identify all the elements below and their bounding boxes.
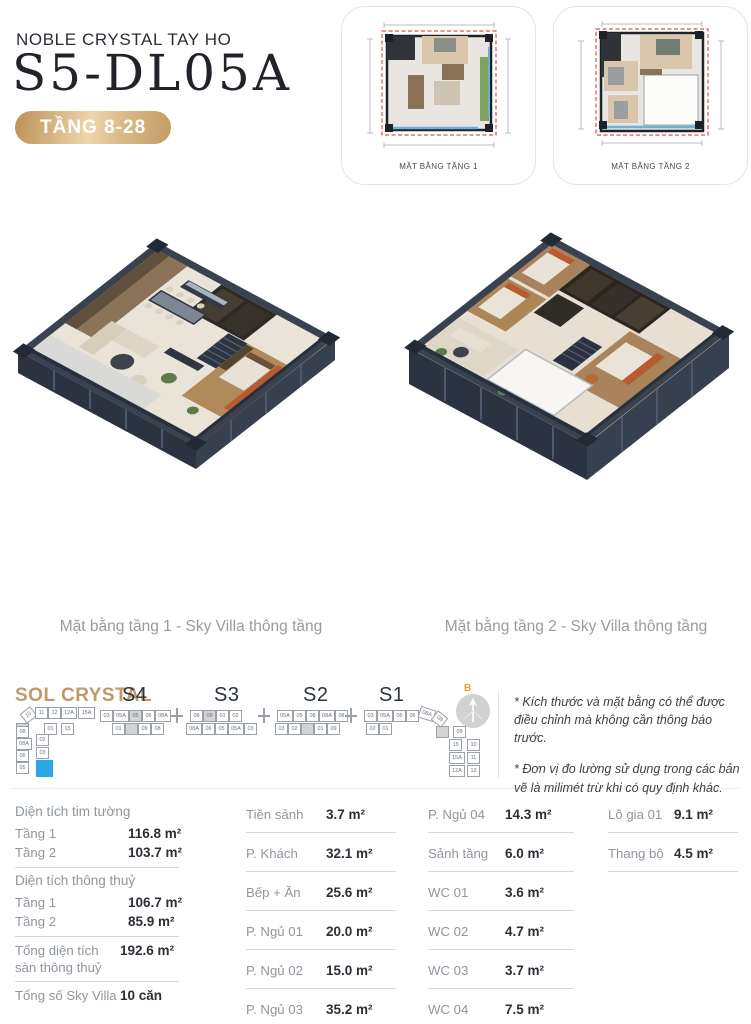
unit-cell: 09: [327, 723, 340, 735]
area-row-value: 6.0 m²: [505, 845, 544, 863]
note-adjustment: * Kích thước và mặt bằng có thể được điề…: [514, 693, 744, 747]
floor-range-badge: TẦNG 8-28: [15, 111, 171, 144]
unit-cell: 08: [151, 723, 164, 735]
strip-connector: [345, 715, 357, 717]
unit-cell: 08: [190, 710, 203, 722]
compass-north-label: B: [464, 683, 471, 694]
unit-cell: 03: [364, 710, 377, 722]
unit-cell: [436, 726, 449, 738]
building-locator-strip: 0305A050608A0109080809010208A060505A0305…: [0, 704, 500, 788]
area-row-value: 3.7 m²: [326, 806, 365, 824]
summary-row-label: Tổng số Sky Villa: [15, 986, 120, 1004]
unit-cell: 05A: [113, 710, 129, 722]
area-row: WC 024.7 m²: [428, 923, 574, 950]
unit-cell: 05: [16, 762, 29, 774]
area-row-label: Sảnh tầng: [428, 845, 505, 863]
area-row-value: 3.7 m²: [505, 962, 544, 980]
disclaimer-notes: * Kích thước và mặt bằng có thể được điề…: [514, 693, 744, 810]
unit-cell: 03: [244, 723, 257, 735]
unit-cell: 08A: [319, 710, 335, 722]
area-row-label: Thang bộ: [608, 845, 674, 863]
unit-cell: 02: [36, 734, 49, 746]
summary-divider: [15, 981, 179, 982]
area-row: P. Ngủ 0335.2 m²: [246, 1001, 396, 1024]
area-row: Sảnh tầng6.0 m²: [428, 845, 574, 872]
area-row-label: P. Ngủ 04: [428, 806, 505, 824]
area-row: Tiền sảnh3.7 m²: [246, 806, 396, 833]
unit-cell: 05A: [377, 710, 393, 722]
unit-cell: 02: [366, 723, 379, 735]
area-row-label: P. Khách: [246, 845, 326, 863]
unit-cell: 08A: [16, 738, 32, 750]
area-row-value: 3.6 m²: [505, 884, 544, 902]
unit-cell: 02: [229, 710, 242, 722]
summary-row: Tổng số Sky Villa10 căn: [15, 986, 230, 1005]
area-row-value: 7.5 m²: [505, 1001, 544, 1019]
area-row-label: P. Ngủ 03: [246, 1001, 326, 1019]
area-row: WC 013.6 m²: [428, 884, 574, 911]
floorplan-thumbnail-level2: MẶT BẰNG TẦNG 2: [553, 6, 748, 185]
unit-cell: 12: [48, 707, 61, 719]
area-row-label: Lô gia 01: [608, 806, 674, 824]
unit-cell: 01: [314, 723, 327, 735]
summary-group-title: Diện tích tim tường: [15, 803, 230, 821]
unit-cell: 08: [16, 726, 29, 738]
unit-cell: 15: [449, 739, 462, 751]
unit-cell: 06: [142, 710, 155, 722]
area-row-label: WC 01: [428, 884, 505, 902]
area-row-value: 35.2 m²: [326, 1001, 373, 1019]
summary-row-value: 116.8 m²: [128, 824, 181, 843]
strip-connector: [171, 715, 183, 717]
unit-cell: 15: [61, 723, 74, 735]
summary-row: Tổng diện tích sàn thông thuỷ192.6 m²: [15, 941, 230, 976]
unit-cell: 05: [215, 723, 228, 735]
floorplan-2d-level2: [568, 17, 733, 153]
unit-cell: 05: [129, 710, 142, 722]
area-row: WC 033.7 m²: [428, 962, 574, 989]
unit-cell: 10: [467, 739, 480, 751]
area-row-value: 20.0 m²: [326, 923, 373, 941]
summary-divider: [15, 867, 179, 868]
area-row-label: WC 04: [428, 1001, 505, 1019]
area-row: P. Ngủ 0414.3 m²: [428, 806, 574, 833]
unit-cell: 12A: [61, 707, 77, 719]
thumbnail-label: MẶT BẰNG TẦNG 2: [554, 162, 747, 171]
unit-cell: [36, 760, 53, 777]
summary-row-value: 10 căn: [120, 986, 162, 1005]
summary-row: Tầng 1106.7 m²: [15, 893, 230, 912]
unit-cell: 05: [393, 710, 406, 722]
room-area-column-2: P. Ngủ 0414.3 m²Sảnh tầng6.0 m²WC 013.6 …: [428, 806, 574, 1024]
floorplan-3d-level1: [2, 214, 382, 604]
area-row-label: Tiền sảnh: [246, 806, 326, 824]
summary-row: Tầng 2103.7 m²: [15, 843, 230, 862]
area-row-label: P. Ngủ 02: [246, 962, 326, 980]
area-row: P. Ngủ 0120.0 m²: [246, 923, 396, 950]
unit-cell: 08A: [186, 723, 202, 735]
summary-row: Tầng 1116.8 m²: [15, 824, 230, 843]
unit-cell: 11: [35, 707, 48, 719]
unit-code-title: S5-DL05A: [12, 44, 292, 102]
unit-cell: 03: [36, 747, 49, 759]
unit-cell: 09: [138, 723, 151, 735]
summary-row-value: 106.7 m²: [128, 893, 182, 912]
area-row: P. Ngủ 0215.0 m²: [246, 962, 396, 989]
unit-cell: 01: [112, 723, 125, 735]
unit-cell: 12: [467, 765, 480, 777]
summary-row-value: 192.6 m²: [120, 941, 174, 960]
unit-cell: 06: [202, 723, 215, 735]
summary-row-label: Tầng 1: [15, 893, 128, 912]
unit-cell: 03: [275, 723, 288, 735]
strip-connector: [258, 715, 270, 717]
area-row-value: 4.7 m²: [505, 923, 544, 941]
area-row-label: P. Ngủ 01: [246, 923, 326, 941]
area-row-label: WC 02: [428, 923, 505, 941]
unit-cell: 01: [216, 710, 229, 722]
unit-cell: 08A: [155, 710, 171, 722]
summary-row-label: Tầng 2: [15, 843, 128, 862]
unit-cell: 11: [467, 752, 480, 764]
area-row-label: Bếp + Ăn: [246, 884, 326, 902]
unit-cell: 15A: [449, 752, 465, 764]
summary-row-value: 85.9 m²: [128, 912, 175, 931]
summary-row: Tầng 285.9 m²: [15, 912, 230, 931]
summary-divider: [15, 936, 179, 937]
unit-cell: 06: [16, 750, 29, 762]
brochure-page: NOBLE CRYSTAL TAY HO S5-DL05A TẦNG 8-28: [0, 0, 751, 1024]
unit-cell: 05A: [228, 723, 244, 735]
area-row-label: WC 03: [428, 962, 505, 980]
area-row-value: 9.1 m²: [674, 806, 713, 824]
floorplan-3d-level2: [386, 206, 748, 601]
note-units: * Đơn vị đo lường sử dụng trong các bản …: [514, 760, 744, 796]
caption-level1: Mặt bằng tầng 1 - Sky Villa thông tầng: [28, 618, 354, 636]
room-area-column-1: Tiền sảnh3.7 m²P. Khách32.1 m²Bếp + Ăn25…: [246, 806, 396, 1024]
summary-row-label: Tầng 1: [15, 824, 128, 843]
unit-cell: 05: [293, 710, 306, 722]
unit-cell: [301, 723, 314, 735]
area-row: Lô gia 019.1 m²: [608, 806, 738, 833]
unit-cell: 09: [203, 710, 216, 722]
unit-cell: 12A: [449, 765, 465, 777]
summary-group-title: Diện tích thông thuỷ: [15, 872, 230, 890]
area-row: WC 047.5 m²: [428, 1001, 574, 1024]
floorplan-2d-level1: [356, 17, 521, 153]
unit-cell: 03: [100, 710, 113, 722]
area-row-value: 32.1 m²: [326, 845, 373, 863]
area-row: Thang bộ4.5 m²: [608, 845, 738, 872]
area-row-value: 15.0 m²: [326, 962, 373, 980]
floorplan-thumbnail-level1: MẶT BẰNG TẦNG 1: [341, 6, 536, 185]
summary-row-label: Tầng 2: [15, 912, 128, 931]
area-row-value: 4.5 m²: [674, 845, 713, 863]
room-area-column-3: Lô gia 019.1 m²Thang bộ4.5 m²: [608, 806, 738, 884]
area-row: Bếp + Ăn25.6 m²: [246, 884, 396, 911]
thumbnail-label: MẶT BẰNG TẦNG 1: [342, 162, 535, 171]
unit-cell: 02: [288, 723, 301, 735]
unit-cell: 15A: [78, 707, 95, 719]
caption-level2: Mặt bằng tầng 2 - Sky Villa thông tầng: [418, 618, 734, 636]
area-row-value: 25.6 m²: [326, 884, 373, 902]
area-summary-column: Diện tích tim tườngTầng 1116.8 m²Tầng 21…: [15, 803, 230, 1005]
locator-notes-divider: [498, 690, 499, 778]
unit-cell: 08: [306, 710, 319, 722]
area-row-value: 14.3 m²: [505, 806, 552, 824]
unit-cell: [125, 723, 138, 735]
summary-row-label: Tổng diện tích sàn thông thuỷ: [15, 941, 120, 976]
unit-cell: 05A: [277, 710, 293, 722]
summary-row-value: 103.7 m²: [128, 843, 182, 862]
unit-cell: 01: [379, 723, 392, 735]
area-row: P. Khách32.1 m²: [246, 845, 396, 872]
compass-icon: [456, 694, 490, 728]
